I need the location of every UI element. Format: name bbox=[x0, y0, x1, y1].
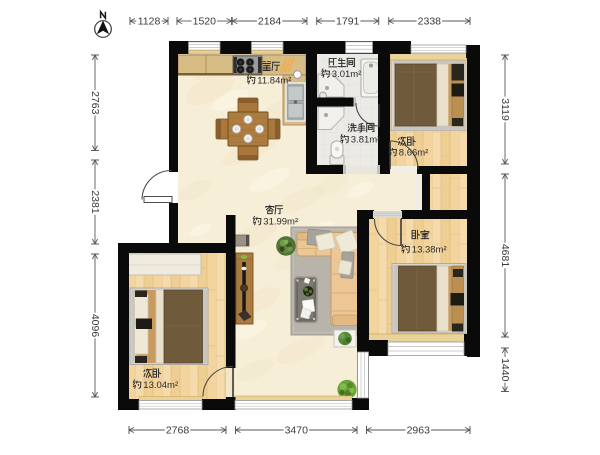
svg-text:13.04m²: 13.04m² bbox=[143, 380, 178, 391]
svg-text:1791: 1791 bbox=[336, 16, 360, 28]
svg-text:3119: 3119 bbox=[499, 98, 511, 121]
svg-text:13.38m²: 13.38m² bbox=[412, 245, 447, 256]
svg-text:2381: 2381 bbox=[89, 190, 101, 214]
svg-text:3470: 3470 bbox=[285, 425, 309, 437]
svg-text:11.84m²: 11.84m² bbox=[257, 76, 291, 87]
svg-text:2763: 2763 bbox=[89, 91, 101, 115]
svg-text:8.66m²: 8.66m² bbox=[399, 148, 429, 159]
svg-text:1440: 1440 bbox=[499, 358, 511, 382]
svg-text:2963: 2963 bbox=[407, 425, 431, 437]
svg-text:2768: 2768 bbox=[166, 425, 190, 437]
svg-text:2184: 2184 bbox=[258, 16, 282, 28]
svg-text:3.01m²: 3.01m² bbox=[332, 69, 362, 80]
svg-text:4096: 4096 bbox=[89, 314, 101, 338]
svg-text:3.81m²: 3.81m² bbox=[351, 135, 381, 146]
svg-text:4681: 4681 bbox=[499, 244, 511, 268]
svg-text:1128: 1128 bbox=[138, 16, 161, 28]
svg-text:31.99m²: 31.99m² bbox=[263, 217, 298, 228]
svg-text:1520: 1520 bbox=[193, 16, 217, 28]
svg-text:2338: 2338 bbox=[418, 16, 442, 28]
